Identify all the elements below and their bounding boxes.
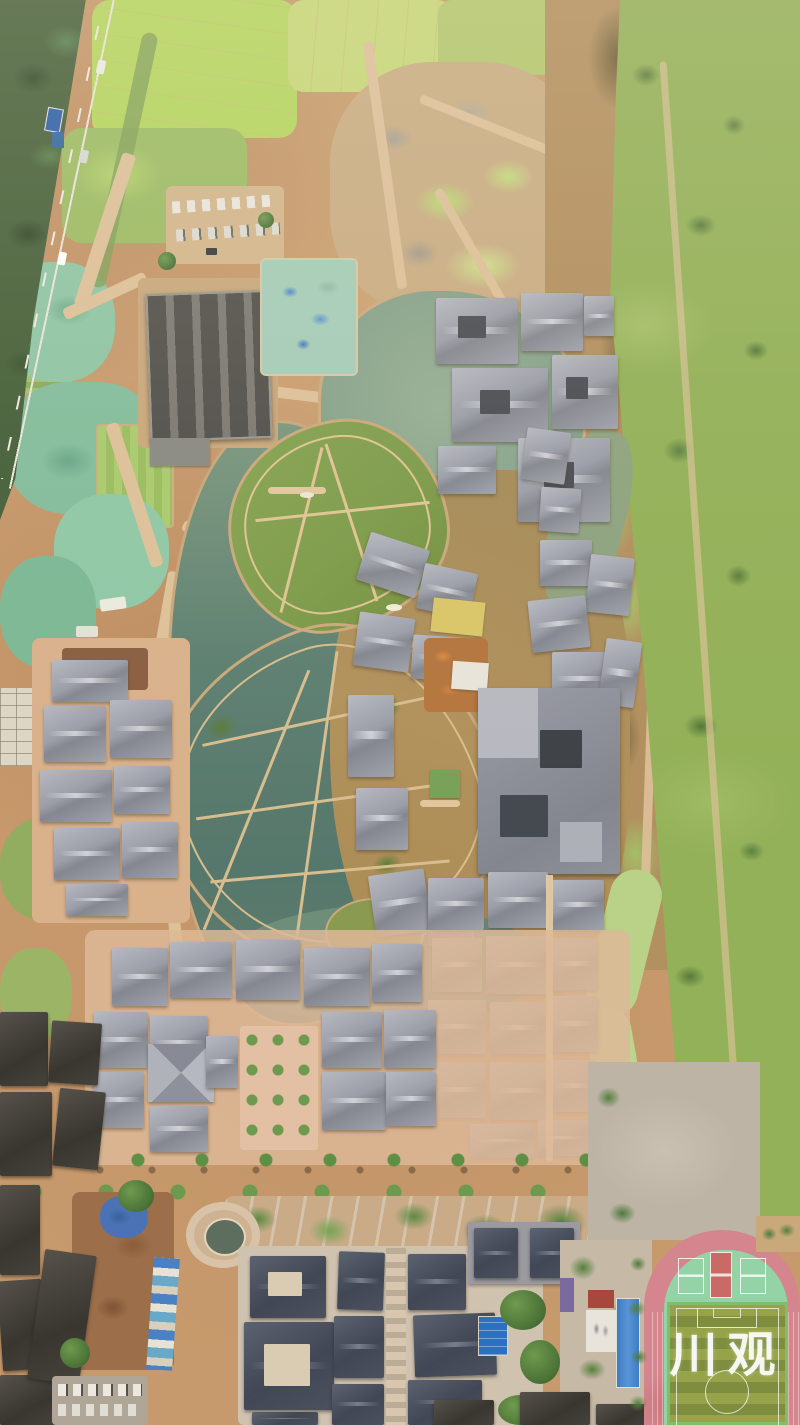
- museum-wing: [478, 688, 538, 758]
- roof-block: [236, 940, 300, 1000]
- white-building: [451, 661, 489, 691]
- tree: [60, 1338, 90, 1368]
- old-street: [386, 1248, 406, 1425]
- dark-building: [145, 290, 272, 442]
- street-roof: [408, 1254, 466, 1310]
- old-roof: [48, 1020, 102, 1085]
- roof-block: [122, 822, 178, 878]
- roof-block: [322, 1012, 382, 1068]
- watermark-text: 川观: [667, 1326, 788, 1384]
- annex-building: [150, 438, 210, 466]
- street-roof: [334, 1316, 384, 1378]
- bridge: [420, 800, 460, 807]
- old-roof: [0, 1092, 52, 1176]
- tree: [158, 252, 176, 270]
- tree: [500, 1290, 546, 1330]
- roof-block: [584, 296, 614, 336]
- roof-block: [304, 948, 370, 1006]
- tree-plaza: [240, 1026, 318, 1150]
- roof-block: [585, 554, 635, 616]
- roof-block: [112, 948, 168, 1006]
- roof-block: [114, 766, 170, 814]
- old-roof: [520, 1392, 590, 1425]
- roof-block: [539, 487, 582, 534]
- white-truck: [76, 626, 98, 637]
- green-shed: [430, 770, 460, 798]
- roof-block: [488, 872, 548, 928]
- hip-roof: [148, 1044, 214, 1102]
- center-court: [710, 1252, 732, 1298]
- car-row: [58, 1384, 142, 1396]
- street-roof: [332, 1384, 384, 1425]
- basketball-court: [740, 1258, 766, 1294]
- roof-block: [170, 942, 232, 998]
- white-banner: [586, 1310, 616, 1352]
- blue-pool: [478, 1316, 508, 1356]
- tree: [258, 212, 274, 228]
- tree: [118, 1180, 154, 1212]
- tree: [520, 1340, 560, 1384]
- school-plaza: [588, 1062, 760, 1240]
- boat: [300, 492, 314, 498]
- highway-sign: [52, 132, 64, 148]
- roof-block: [521, 293, 583, 351]
- roof-block: [384, 1010, 436, 1068]
- stilt-house: [368, 868, 432, 937]
- roof-block: [438, 446, 496, 494]
- pool-construction: [260, 258, 358, 376]
- old-roof: [0, 1012, 48, 1086]
- car-row: [58, 1404, 142, 1416]
- roof-block: [40, 770, 112, 822]
- stilt-house: [353, 611, 416, 672]
- stilt-house: [356, 788, 408, 850]
- roof-block: [44, 706, 106, 762]
- stilt-house: [348, 695, 394, 777]
- old-roof: [0, 1375, 60, 1425]
- corner-trees: [756, 1216, 800, 1252]
- old-roof: [52, 1088, 106, 1170]
- roof-block: [386, 1072, 436, 1126]
- courtyard: [458, 316, 486, 338]
- red-building: [588, 1290, 614, 1308]
- roof-block: [540, 540, 592, 586]
- roof-block: [110, 700, 172, 758]
- courtyard-house-wing: [474, 1228, 518, 1278]
- museum-courtyard: [540, 730, 582, 768]
- trackside-trees: [626, 1246, 650, 1425]
- street-roof: [337, 1251, 385, 1311]
- museum-terrace: [560, 822, 602, 862]
- temple-courtyard: [268, 1272, 302, 1296]
- courtyard: [566, 377, 588, 399]
- bridge: [268, 487, 326, 494]
- temple-roof: [252, 1412, 318, 1425]
- old-roof: [434, 1400, 494, 1425]
- roof-block: [66, 884, 128, 916]
- roof-block: [322, 1072, 386, 1130]
- roof-block: [52, 660, 128, 702]
- courtyard: [480, 390, 510, 414]
- roof-block: [372, 944, 422, 1002]
- roof-block: [552, 880, 604, 930]
- purple-canopy: [560, 1278, 574, 1312]
- roof-block: [428, 878, 484, 930]
- aerial-photo: 川观: [0, 0, 800, 1425]
- roof-block: [527, 595, 590, 653]
- car: [206, 248, 217, 255]
- roof-block: [150, 1106, 208, 1152]
- roof-block: [521, 427, 572, 485]
- museum-courtyard: [500, 795, 548, 837]
- basketball-court: [678, 1258, 704, 1294]
- boat: [386, 604, 402, 611]
- goal-box-inner: [713, 1308, 741, 1318]
- yellow-roof: [430, 597, 485, 636]
- roof-block: [94, 1012, 148, 1068]
- roof-block: [206, 1036, 238, 1088]
- old-roof: [0, 1185, 40, 1275]
- temple-courtyard: [264, 1344, 310, 1386]
- roof-block: [54, 828, 120, 880]
